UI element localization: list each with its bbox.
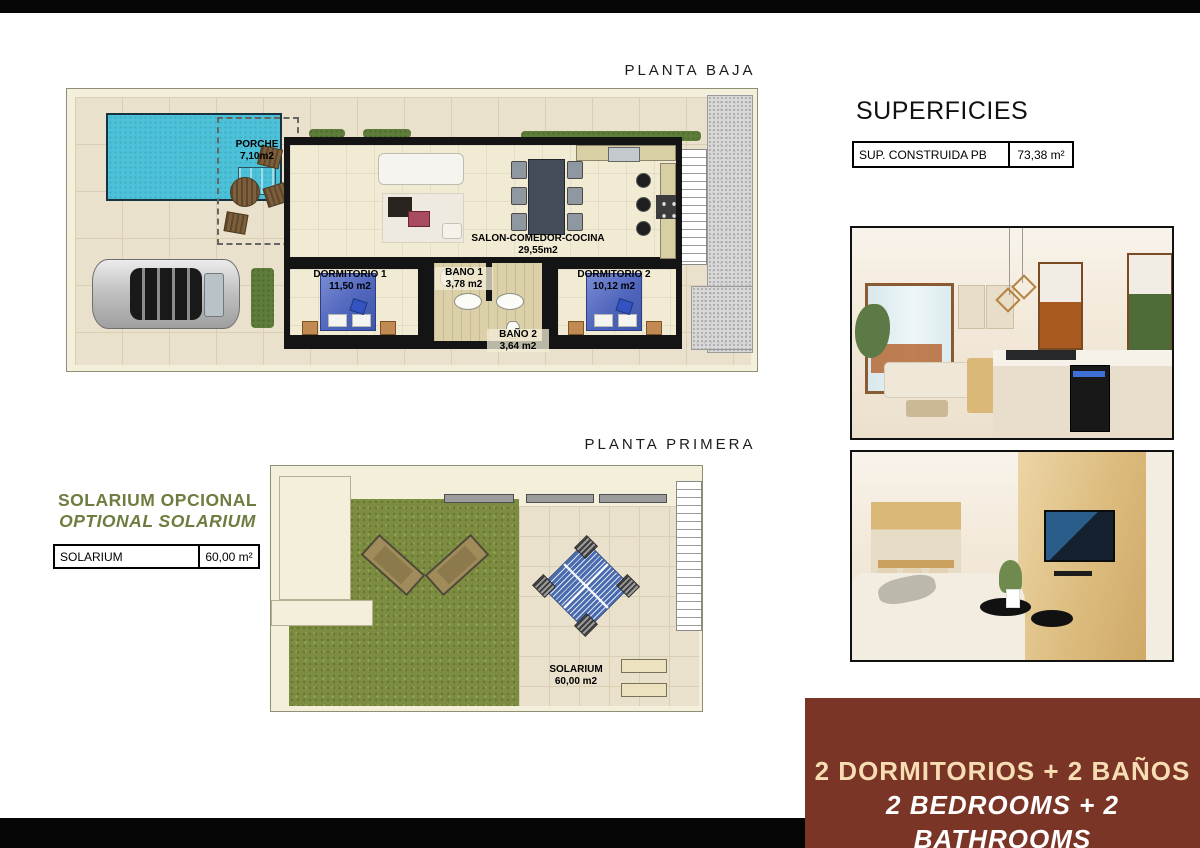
photo1-hob bbox=[1006, 350, 1076, 361]
room-area: 60,00 m2 bbox=[555, 676, 597, 687]
nightstand bbox=[646, 321, 662, 335]
room-area: 3,64 m2 bbox=[500, 341, 537, 352]
dining-chair bbox=[511, 187, 527, 205]
room-area: 3,78 m2 bbox=[446, 279, 483, 290]
ground-floor-plan: PORCHE 7,10m2 SALON-COMEDOR-COCINA 29,55… bbox=[66, 88, 758, 372]
washbasin bbox=[496, 293, 524, 310]
label-dormitorio2: DORMITORIO 2 10,12 m2 bbox=[555, 269, 673, 292]
solarium-option-line2: OPTIONAL SOLARIUM bbox=[40, 511, 275, 532]
photo2-shelf bbox=[1054, 571, 1092, 576]
superficies-title: SUPERFICIES bbox=[856, 97, 1028, 126]
superficies-row-value: 73,38 m² bbox=[1008, 143, 1072, 166]
room-area: 10,12 m2 bbox=[593, 281, 635, 292]
solarium-table: SOLARIUM 60,00 m² bbox=[53, 544, 260, 569]
photo-interior-living-kitchen bbox=[850, 226, 1174, 440]
landing-walkway bbox=[271, 600, 373, 626]
top-border bbox=[0, 0, 1200, 13]
photo2-dining-table bbox=[878, 560, 955, 568]
dining-chair bbox=[511, 213, 527, 231]
pillow bbox=[594, 314, 613, 327]
planter-bar bbox=[526, 494, 594, 503]
room-area: 7,10m2 bbox=[240, 151, 274, 162]
sofa bbox=[378, 153, 464, 185]
room-name: SALON-COMEDOR-COCINA bbox=[471, 233, 604, 244]
room-name: BANO 1 bbox=[445, 267, 483, 278]
planter-bar bbox=[444, 494, 514, 503]
bar-stool bbox=[636, 221, 651, 236]
solarium-row-value: 60,00 m² bbox=[198, 546, 258, 567]
label-porche: PORCHE 7,10m2 bbox=[213, 139, 301, 162]
photo2-vase bbox=[1006, 589, 1021, 608]
photo1-pendant-cord bbox=[1009, 228, 1010, 295]
photo1-wall-art bbox=[958, 285, 986, 329]
washbasin bbox=[454, 293, 482, 310]
car-roof bbox=[130, 268, 201, 320]
solarium-row-label: SOLARIUM bbox=[55, 546, 198, 567]
pillow bbox=[352, 314, 371, 327]
room-area: 11,50 m2 bbox=[329, 281, 371, 292]
dining-chair bbox=[511, 161, 527, 179]
label-bano1: BANO 1 3,78 m2 bbox=[435, 267, 493, 290]
car-topview bbox=[92, 259, 240, 329]
photo-interior-living-tv bbox=[850, 450, 1174, 662]
dining-chair bbox=[567, 187, 583, 205]
photo2-side-wall bbox=[1146, 452, 1172, 660]
room-name: SOLARIUM bbox=[549, 664, 602, 675]
brochure-page: PLANTA BAJA bbox=[0, 0, 1200, 848]
label-bano2: BAÑO 2 3,64 m2 bbox=[487, 329, 549, 352]
ground-floor-title: PLANTA BAJA bbox=[560, 62, 820, 79]
photo1-coffee-table bbox=[906, 400, 948, 417]
kitchen-sink bbox=[608, 147, 640, 162]
porch-chair bbox=[223, 211, 248, 235]
photo1-oven-display bbox=[1073, 371, 1105, 377]
nightstand bbox=[568, 321, 584, 335]
nightstand bbox=[380, 321, 396, 335]
dining-chair bbox=[567, 213, 583, 231]
stair-landing bbox=[279, 476, 351, 600]
label-salon: SALON-COMEDOR-COCINA 29,55m2 bbox=[453, 233, 623, 256]
photo2-coffee-table bbox=[1031, 610, 1073, 627]
cushion bbox=[349, 298, 367, 315]
photo2-tv bbox=[1044, 510, 1115, 562]
bar-stool bbox=[636, 173, 651, 188]
ottoman bbox=[408, 211, 430, 227]
photo1-window bbox=[1127, 253, 1173, 354]
first-floor-plan: SOLARIUM 60,00 m2 bbox=[270, 465, 703, 712]
footer-banner: 2 DORMITORIOS + 2 BAÑOS 2 BEDROOMS + 2 B… bbox=[805, 698, 1200, 848]
cushion bbox=[615, 298, 633, 315]
banner-line1: 2 DORMITORIOS + 2 BAÑOS bbox=[805, 754, 1200, 788]
pillow bbox=[618, 314, 637, 327]
gravel-corner bbox=[691, 286, 753, 350]
nightstand bbox=[302, 321, 318, 335]
garden-planter bbox=[251, 268, 274, 328]
room-name: BAÑO 2 bbox=[499, 329, 537, 340]
dining-chair bbox=[567, 161, 583, 179]
label-solarium: SOLARIUM 60,00 m2 bbox=[521, 664, 631, 687]
superficies-row-label: SUP. CONSTRUIDA PB bbox=[854, 143, 1008, 166]
car-windshield bbox=[204, 273, 224, 317]
room-name: PORCHE bbox=[236, 139, 279, 150]
stairs-first-floor bbox=[676, 481, 702, 631]
solarium-option-line1: SOLARIUM OPCIONAL bbox=[40, 490, 275, 511]
first-floor-title: PLANTA PRIMERA bbox=[580, 436, 760, 453]
photo1-window bbox=[1038, 262, 1084, 350]
bar-stool bbox=[636, 197, 651, 212]
room-area: 29,55m2 bbox=[518, 245, 557, 256]
porch-table bbox=[230, 177, 260, 207]
stove bbox=[656, 195, 676, 219]
superficies-table: SUP. CONSTRUIDA PB 73,38 m² bbox=[852, 141, 1074, 168]
solarium-option-text: SOLARIUM OPCIONAL OPTIONAL SOLARIUM bbox=[40, 490, 275, 532]
photo1-sofa bbox=[884, 362, 976, 398]
label-dormitorio1: DORMITORIO 1 11,50 m2 bbox=[291, 269, 409, 292]
pillow bbox=[328, 314, 347, 327]
dining-table bbox=[528, 159, 565, 235]
room-name: DORMITORIO 2 bbox=[577, 269, 650, 280]
banner-line2: 2 BEDROOMS + 2 BATHROOMS bbox=[805, 788, 1200, 848]
planter-bar bbox=[599, 494, 667, 503]
room-name: DORMITORIO 1 bbox=[313, 269, 386, 280]
